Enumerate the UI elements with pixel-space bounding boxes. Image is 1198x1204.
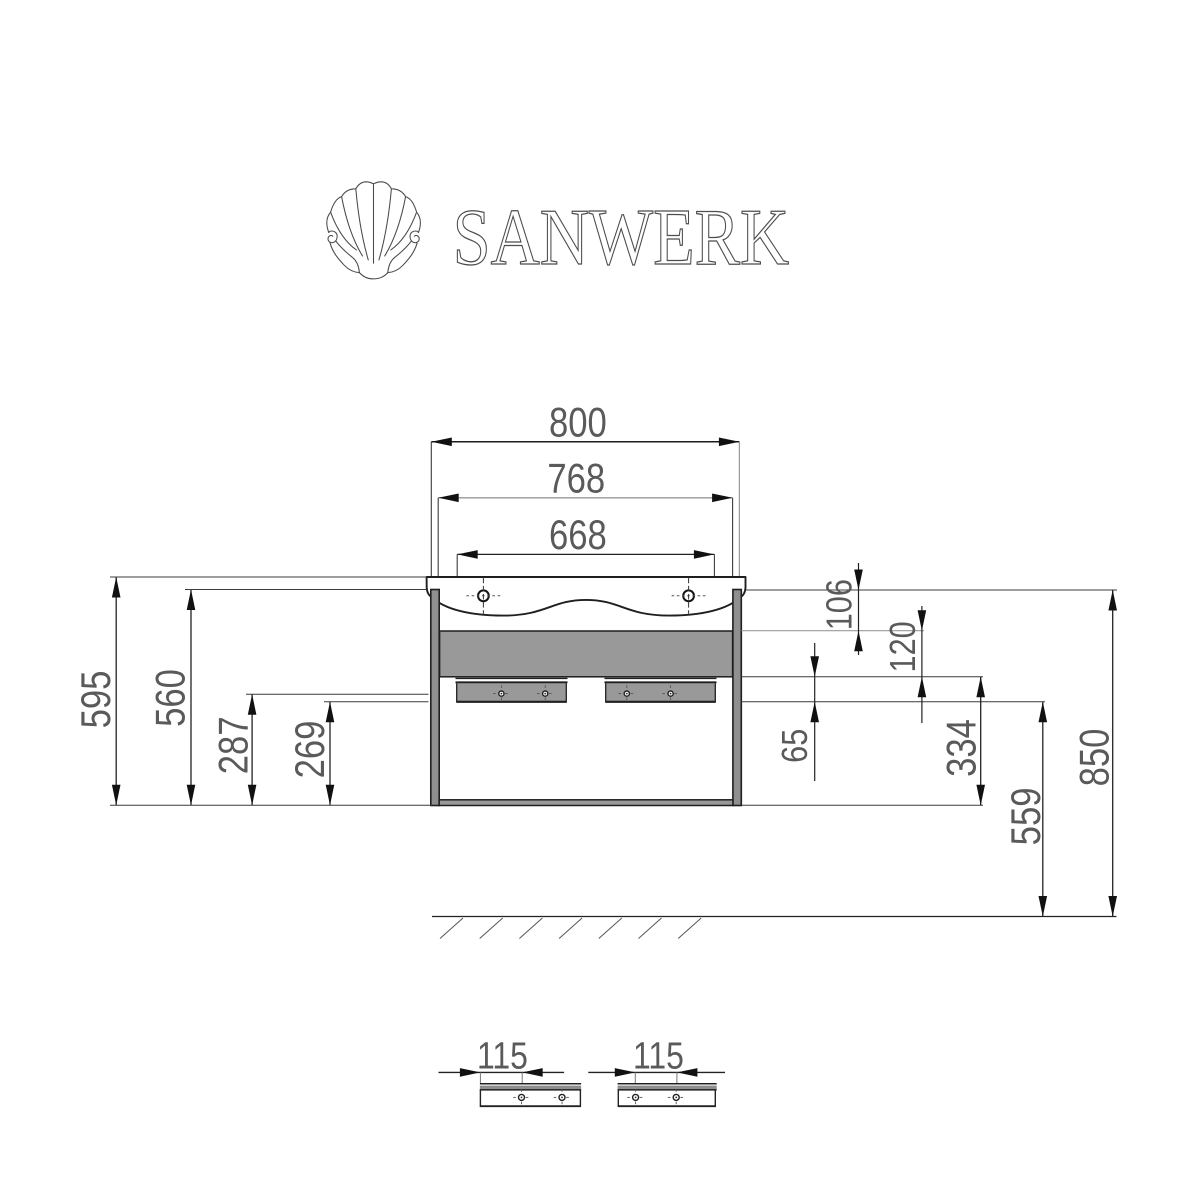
svg-text:800: 800 xyxy=(549,400,607,447)
svg-text:595: 595 xyxy=(73,671,120,729)
svg-text:560: 560 xyxy=(148,669,195,727)
svg-text:768: 768 xyxy=(547,456,605,503)
svg-text:334: 334 xyxy=(939,719,986,777)
svg-text:269: 269 xyxy=(287,721,334,779)
svg-text:850: 850 xyxy=(1072,729,1119,787)
svg-text:559: 559 xyxy=(1003,787,1050,845)
svg-text:106: 106 xyxy=(819,579,860,630)
svg-text:SANWERK: SANWERK xyxy=(453,192,789,282)
svg-text:120: 120 xyxy=(882,621,923,672)
svg-text:287: 287 xyxy=(211,716,258,774)
svg-text:115: 115 xyxy=(633,1035,684,1077)
svg-text:115: 115 xyxy=(477,1035,528,1077)
svg-text:65: 65 xyxy=(775,729,816,763)
svg-text:668: 668 xyxy=(549,512,607,559)
